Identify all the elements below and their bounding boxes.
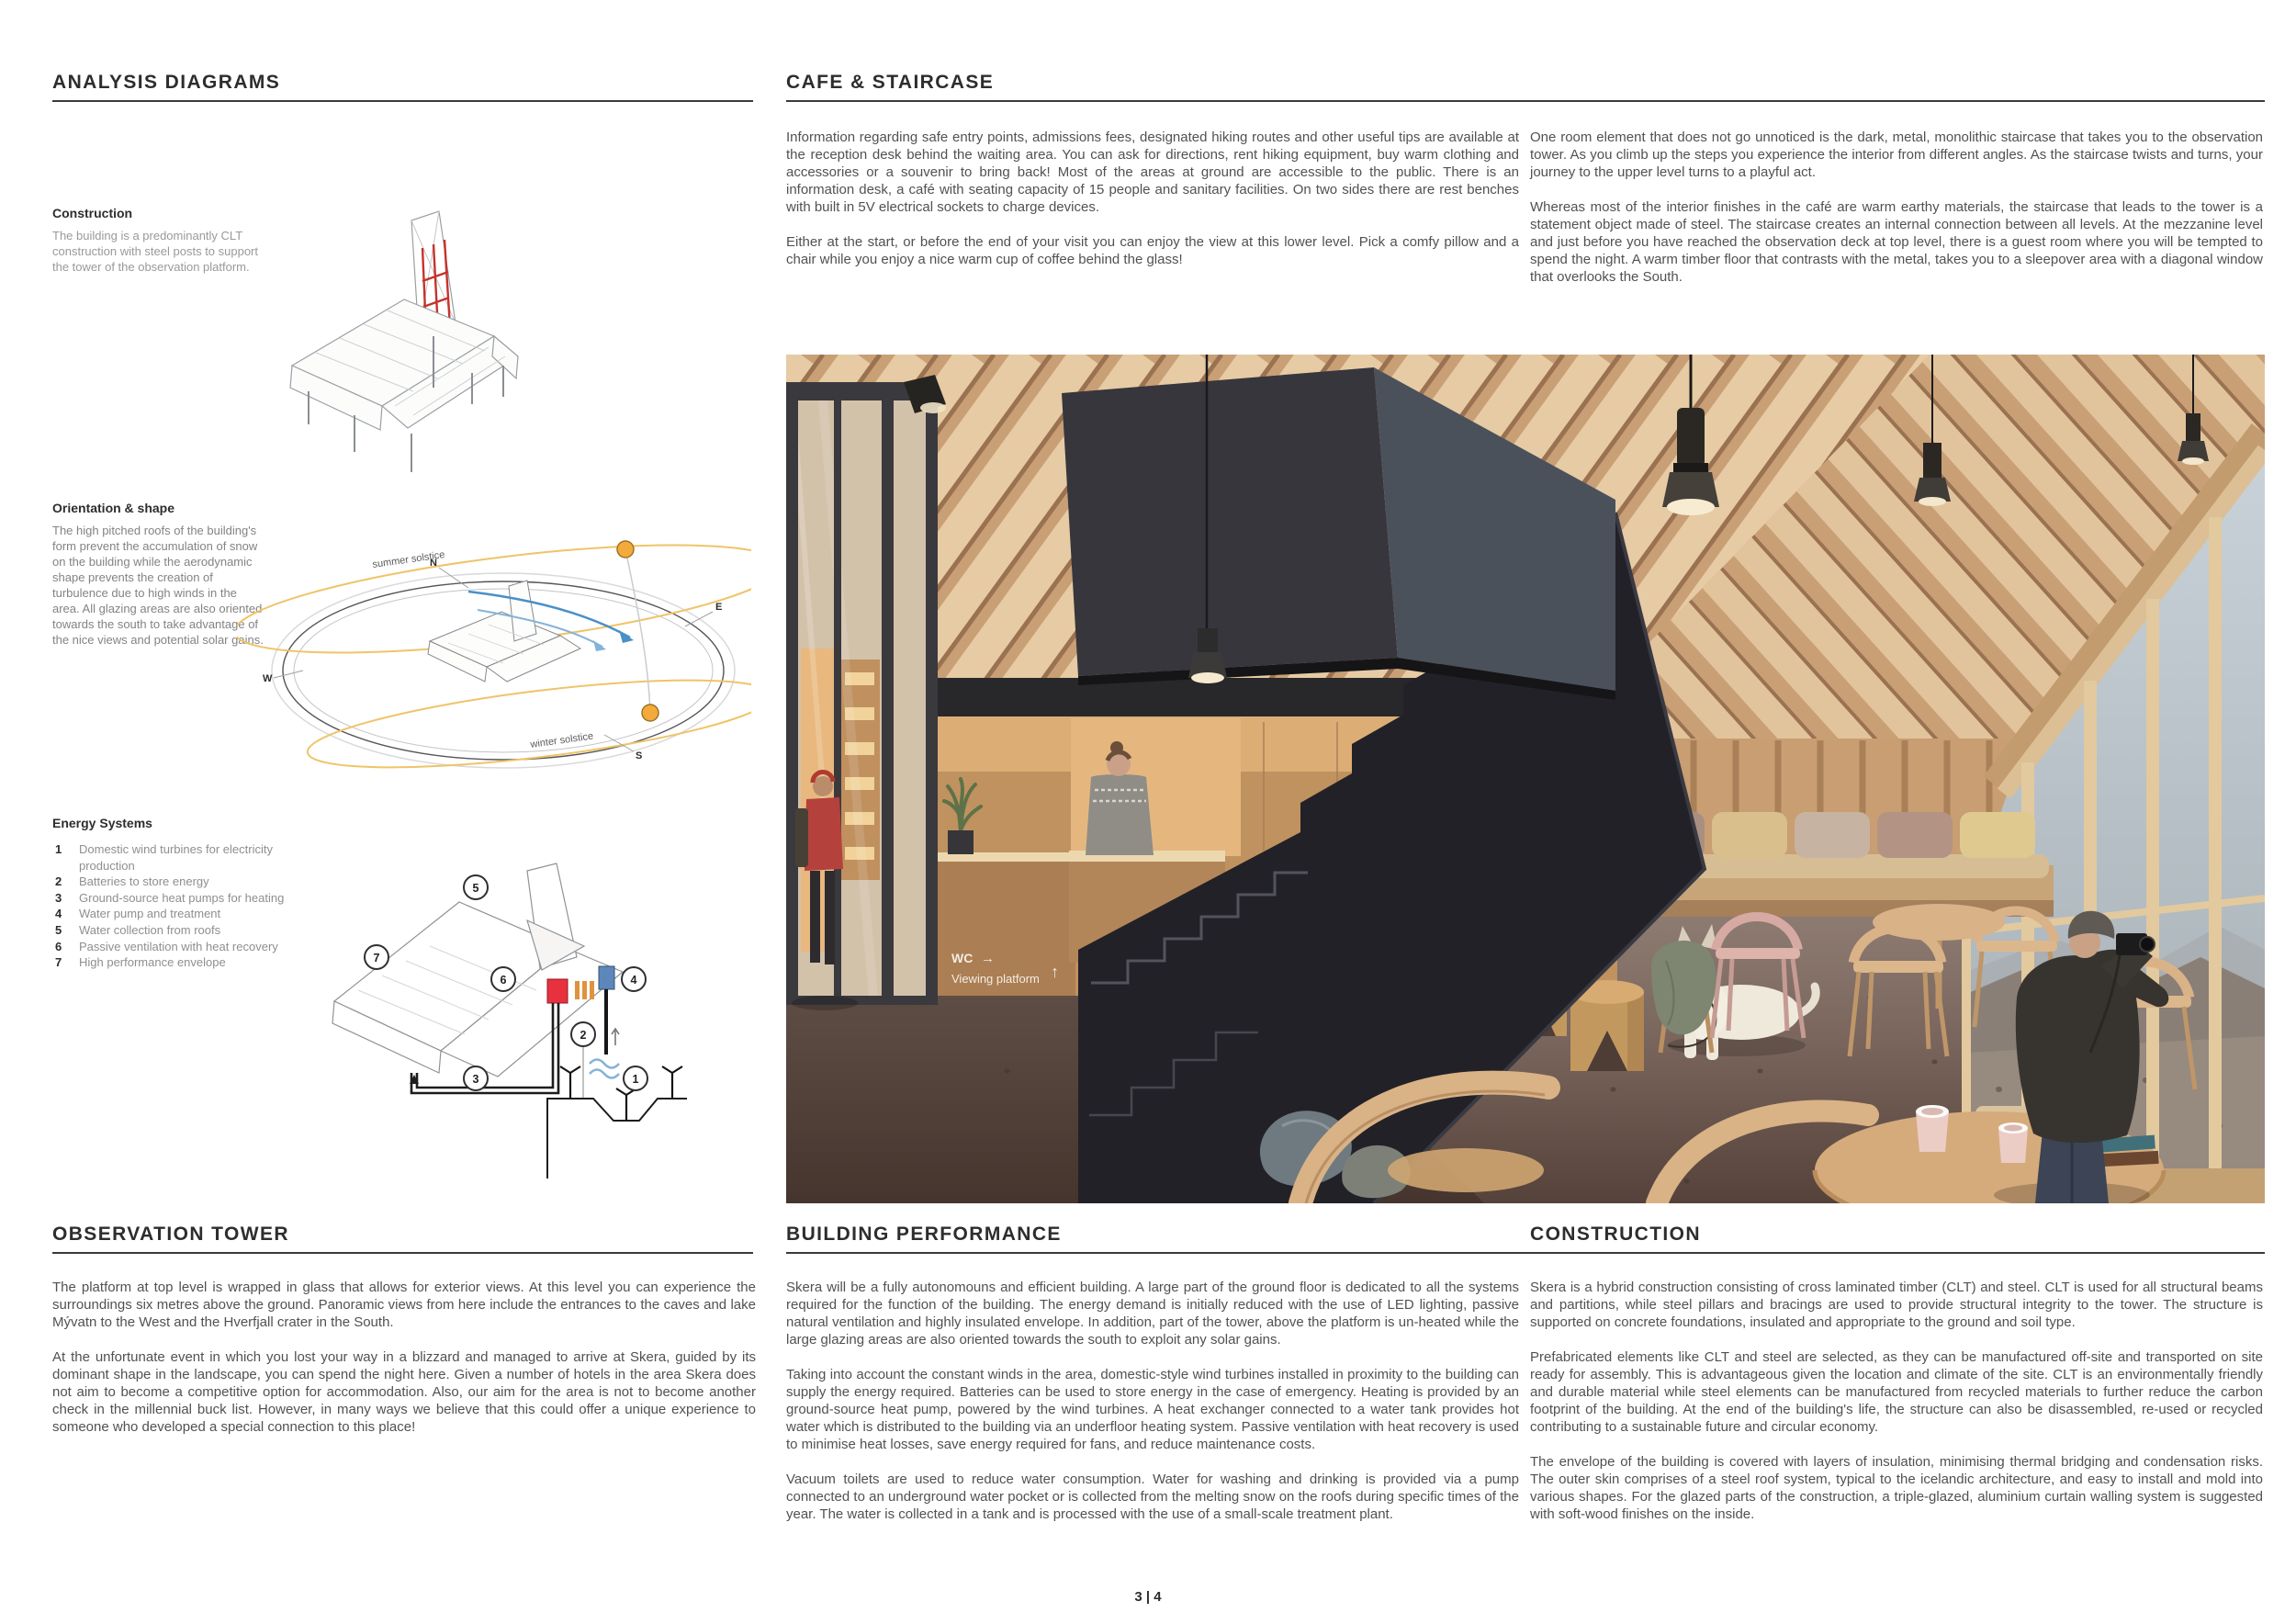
badge-1: 1 xyxy=(633,1073,639,1086)
coffee-cup xyxy=(1916,1105,1949,1152)
sun-summer-icon xyxy=(617,541,634,558)
visitor-head xyxy=(813,776,833,796)
water-tank-icon xyxy=(599,966,614,989)
compass-west-label: W xyxy=(263,673,273,684)
water-waves-icon xyxy=(590,1060,619,1078)
badge-5: 5 xyxy=(473,882,479,895)
item-num: 1 xyxy=(55,841,79,874)
wc-sign-label: WC xyxy=(951,951,973,965)
radiator-icon xyxy=(575,981,594,999)
right-arrow-icon: → xyxy=(981,951,995,966)
list-item: 4Water pump and treatment xyxy=(55,906,331,922)
compass-south-label: S xyxy=(636,750,642,761)
item-num: 7 xyxy=(55,954,79,971)
body-paragraph: Information regarding safe entry points,… xyxy=(786,129,1519,216)
energy-subheading: Energy Systems xyxy=(52,816,152,830)
item-label: Water collection from roofs xyxy=(79,922,220,939)
analysis-diagrams-title: ANALYSIS DIAGRAMS xyxy=(52,72,280,94)
body-paragraph: Taking into account the constant winds i… xyxy=(786,1366,1519,1453)
item-label: Water pump and treatment xyxy=(79,906,220,922)
body-paragraph: Prefabricated elements like CLT and stee… xyxy=(1530,1348,2263,1436)
winter-solstice-label: winter solstice xyxy=(529,730,594,750)
cafe-interior-render: WC → Viewing platform ↑ xyxy=(786,355,2265,1203)
backpack xyxy=(795,808,808,867)
badge-2: 2 xyxy=(580,1029,587,1042)
energy-systems-list: 1Domestic wind turbines for electricity … xyxy=(55,841,331,971)
sun-winter-icon xyxy=(642,705,658,721)
observation-tower-title: OBSERVATION TOWER xyxy=(52,1224,289,1246)
badge-7: 7 xyxy=(374,952,380,964)
heat-pump-icon xyxy=(547,979,568,1003)
cafe-staircase-title: CAFE & STAIRCASE xyxy=(786,72,994,94)
cafe-text-column-1: Information regarding safe entry points,… xyxy=(786,129,1519,286)
list-item: 5Water collection from roofs xyxy=(55,922,331,939)
list-item: 1Domestic wind turbines for electricity … xyxy=(55,841,331,874)
item-num: 2 xyxy=(55,874,79,890)
body-paragraph: The platform at top level is wrapped in … xyxy=(52,1279,756,1331)
body-paragraph: Either at the start, or before the end o… xyxy=(786,233,1519,268)
camera-lens xyxy=(2140,937,2155,952)
body-paragraph: The envelope of the building is covered … xyxy=(1530,1453,2263,1523)
body-paragraph: Skera will be a fully autonomouns and ef… xyxy=(786,1279,1519,1348)
orientation-diagram: N E W S summer solstice winter solstice xyxy=(237,533,751,808)
compass-east-label: E xyxy=(715,602,722,613)
viewing-platform-label: Viewing platform xyxy=(951,972,1040,986)
rule xyxy=(52,1252,753,1254)
wind-turbines-icon xyxy=(560,1066,682,1121)
portfolio-page: ANALYSIS DIAGRAMS Construction The build… xyxy=(0,0,2296,1624)
construction-note: The building is a predominantly CLT cons… xyxy=(52,228,275,275)
body-paragraph: At the unfortunate event in which you lo… xyxy=(52,1348,756,1436)
energy-systems-diagram: 5 7 6 4 2 3 1 xyxy=(321,862,726,1209)
item-label: High performance envelope xyxy=(79,954,226,971)
list-item: 3Ground-source heat pumps for heating xyxy=(55,890,331,907)
red-jacket xyxy=(805,797,843,871)
body-paragraph: Vacuum toilets are used to reduce water … xyxy=(786,1471,1519,1523)
wind-arrowhead-icon xyxy=(619,630,634,643)
terrain-profile xyxy=(547,1099,687,1179)
mezzanine-box-front xyxy=(1062,367,1398,676)
construction-subheading: Construction xyxy=(52,206,132,220)
knit-sweater xyxy=(1086,774,1154,855)
wind-arrowhead-2-icon xyxy=(593,640,606,651)
item-num: 3 xyxy=(55,890,79,907)
item-label: Domestic wind turbines for electricity p… xyxy=(79,841,331,874)
construction-section-text: Skera is a hybrid construction consistin… xyxy=(1530,1279,2263,1540)
item-num: 4 xyxy=(55,906,79,922)
coffee-cup xyxy=(1998,1122,2028,1163)
body-paragraph: Skera is a hybrid construction consistin… xyxy=(1530,1279,2263,1331)
item-num: 6 xyxy=(55,939,79,955)
elevator xyxy=(786,382,938,1005)
orientation-subheading: Orientation & shape xyxy=(52,501,174,515)
item-label: Ground-source heat pumps for heating xyxy=(79,890,284,907)
item-num: 5 xyxy=(55,922,79,939)
building-performance-text: Skera will be a fully autonomouns and ef… xyxy=(786,1279,1519,1540)
rule xyxy=(786,1252,2265,1254)
badge-4: 4 xyxy=(631,974,637,987)
list-item: 2Batteries to store energy xyxy=(55,874,331,890)
item-label: Batteries to store energy xyxy=(79,874,209,890)
rule xyxy=(786,100,2265,102)
badge-3: 3 xyxy=(473,1073,479,1086)
body-paragraph: Whereas most of the interior finishes in… xyxy=(1530,198,2263,286)
item-label: Passive ventilation with heat recovery xyxy=(79,939,278,955)
rule xyxy=(52,100,753,102)
construction-diagram xyxy=(276,208,542,483)
building-performance-title: BUILDING PERFORMANCE xyxy=(786,1224,1062,1246)
cafe-text-column-2: One room element that does not go unnoti… xyxy=(1530,129,2263,303)
orientation-note: The high pitched roofs of the building's… xyxy=(52,523,265,648)
plant-pot xyxy=(948,830,974,854)
up-arrow-icon: ↑ xyxy=(1051,963,1059,981)
page-number: 3 | 4 xyxy=(0,1589,2296,1605)
list-item: 6Passive ventilation with heat recovery xyxy=(55,939,331,955)
badge-6: 6 xyxy=(501,974,507,987)
construction-section-title: CONSTRUCTION xyxy=(1530,1224,1701,1246)
observation-tower-text: The platform at top level is wrapped in … xyxy=(52,1279,756,1453)
body-paragraph: One room element that does not go unnoti… xyxy=(1530,129,2263,181)
list-item: 7High performance envelope xyxy=(55,954,331,971)
